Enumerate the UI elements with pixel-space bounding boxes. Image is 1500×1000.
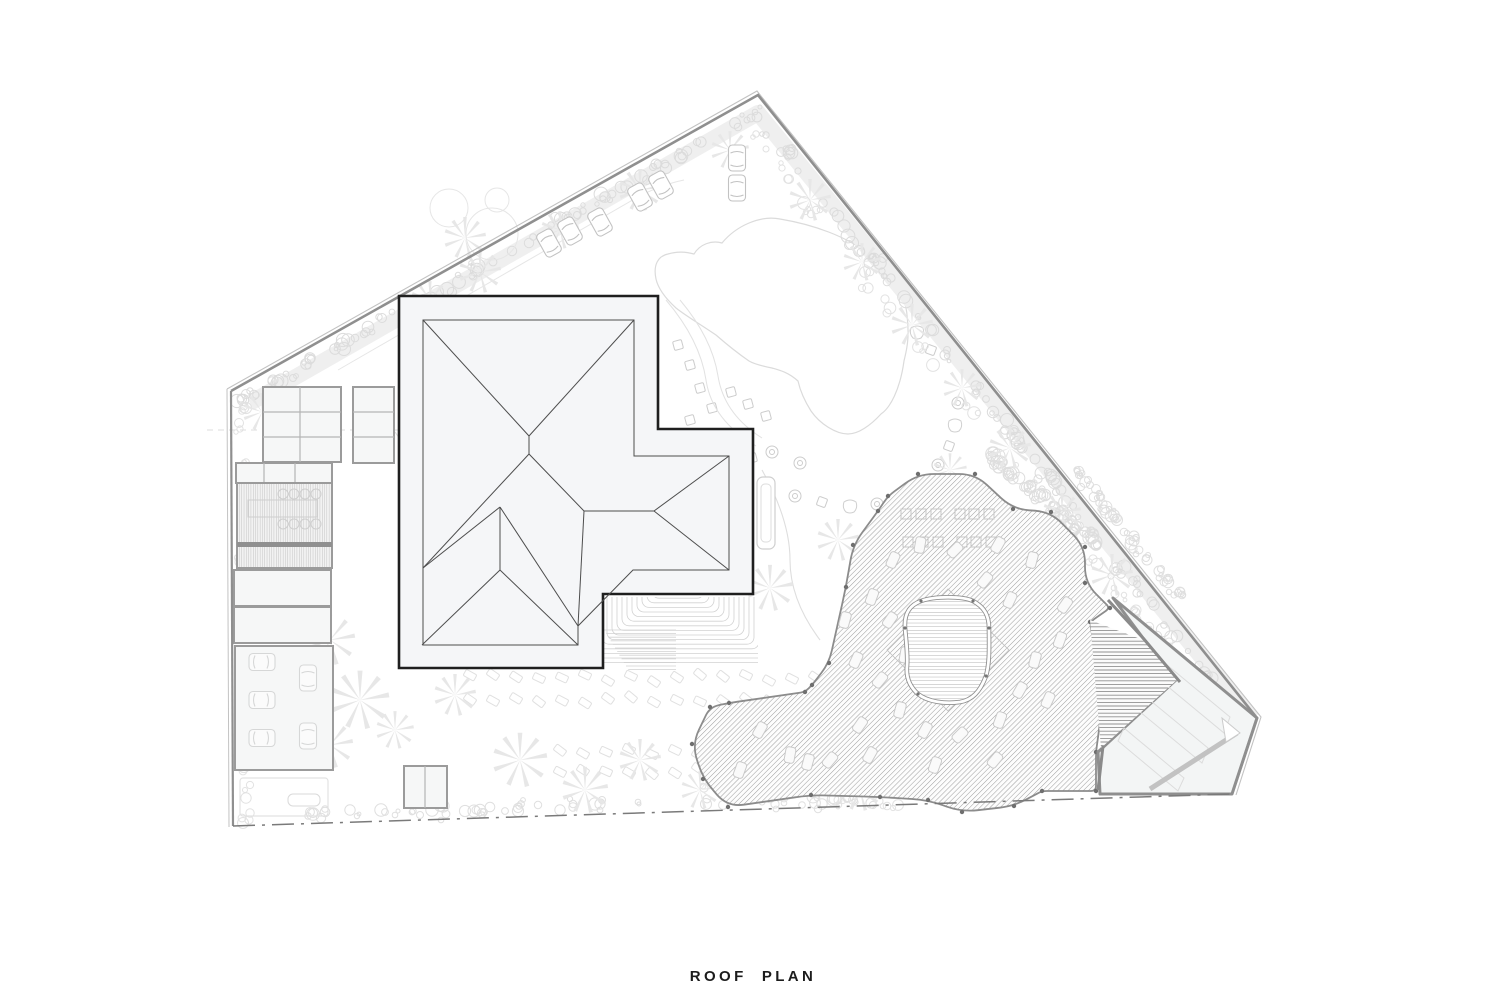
svg-text:ROOF PLAN: ROOF PLAN bbox=[690, 968, 817, 985]
